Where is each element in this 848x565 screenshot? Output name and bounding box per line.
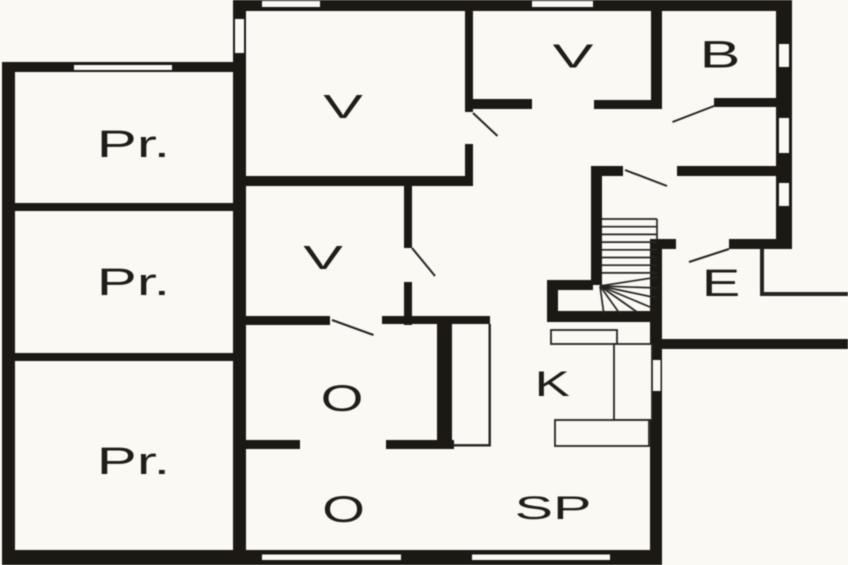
svg-text:B: B — [700, 33, 741, 76]
svg-text:Pr.: Pr. — [97, 123, 170, 165]
svg-text:K: K — [535, 365, 570, 404]
svg-text:V: V — [553, 39, 594, 75]
svg-text:Pr.: Pr. — [97, 261, 170, 303]
svg-text:V: V — [303, 240, 343, 276]
svg-text:O: O — [322, 489, 365, 530]
svg-text:SP: SP — [515, 490, 592, 526]
svg-text:Pr.: Pr. — [97, 440, 170, 482]
svg-text:V: V — [323, 89, 363, 125]
svg-text:O: O — [321, 378, 364, 419]
svg-text:E: E — [702, 263, 741, 305]
